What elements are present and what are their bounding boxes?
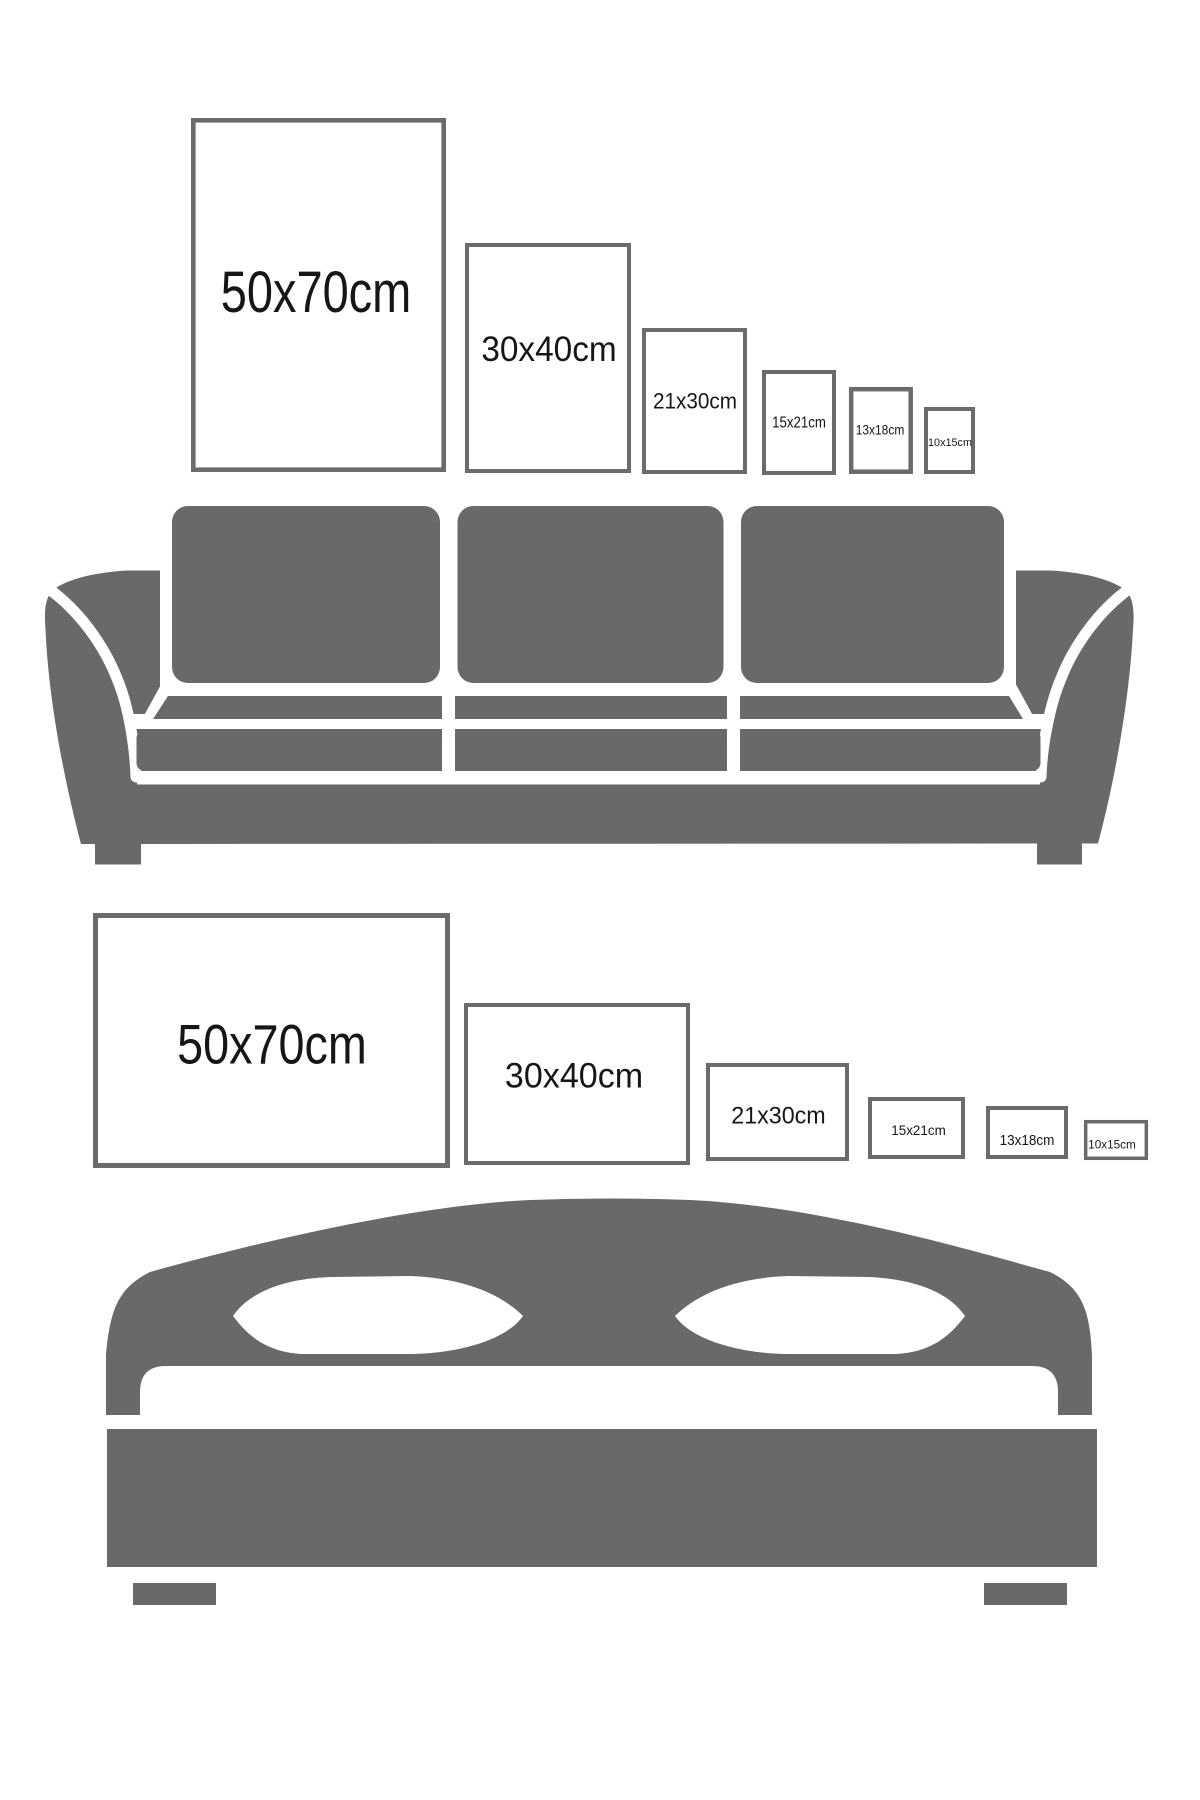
svg-text:13x18cm: 13x18cm	[1000, 1132, 1055, 1149]
svg-text:21x30cm: 21x30cm	[731, 1103, 825, 1129]
svg-text:50x70cm: 50x70cm	[177, 1013, 367, 1076]
svg-text:13x18cm: 13x18cm	[856, 422, 905, 438]
svg-text:30x40cm: 30x40cm	[505, 1057, 643, 1096]
svg-text:30x40cm: 30x40cm	[481, 330, 616, 369]
svg-text:21x30cm: 21x30cm	[653, 389, 737, 414]
svg-text:15x21cm: 15x21cm	[891, 1123, 946, 1138]
svg-text:10x15cm: 10x15cm	[1088, 1138, 1136, 1152]
svg-text:15x21cm: 15x21cm	[772, 414, 826, 431]
svg-text:50x70cm: 50x70cm	[221, 260, 412, 325]
svg-text:10x15cm: 10x15cm	[928, 437, 972, 449]
